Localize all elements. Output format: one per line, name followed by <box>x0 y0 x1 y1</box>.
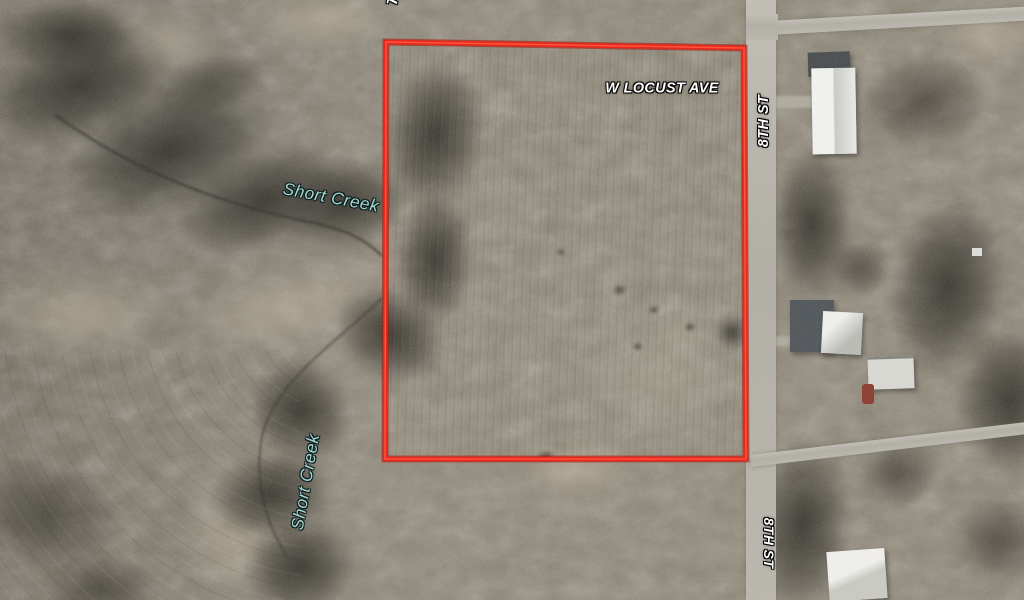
street-label-w-locust-ave: W LOCUST AVE <box>605 80 718 97</box>
parcel-boundary-outer <box>385 42 746 459</box>
parcel-boundary-outline <box>0 0 1024 600</box>
aerial-map-canvas: W LOCUST AVE 8TH ST 8TH ST Short Creek S… <box>0 0 1024 600</box>
parcel-boundary-main <box>385 42 746 459</box>
street-label-8th-st-top: 8TH ST <box>756 95 772 147</box>
street-label-8th-st-bottom: 8TH ST <box>761 518 777 569</box>
parcel-boundary-core <box>385 42 746 459</box>
